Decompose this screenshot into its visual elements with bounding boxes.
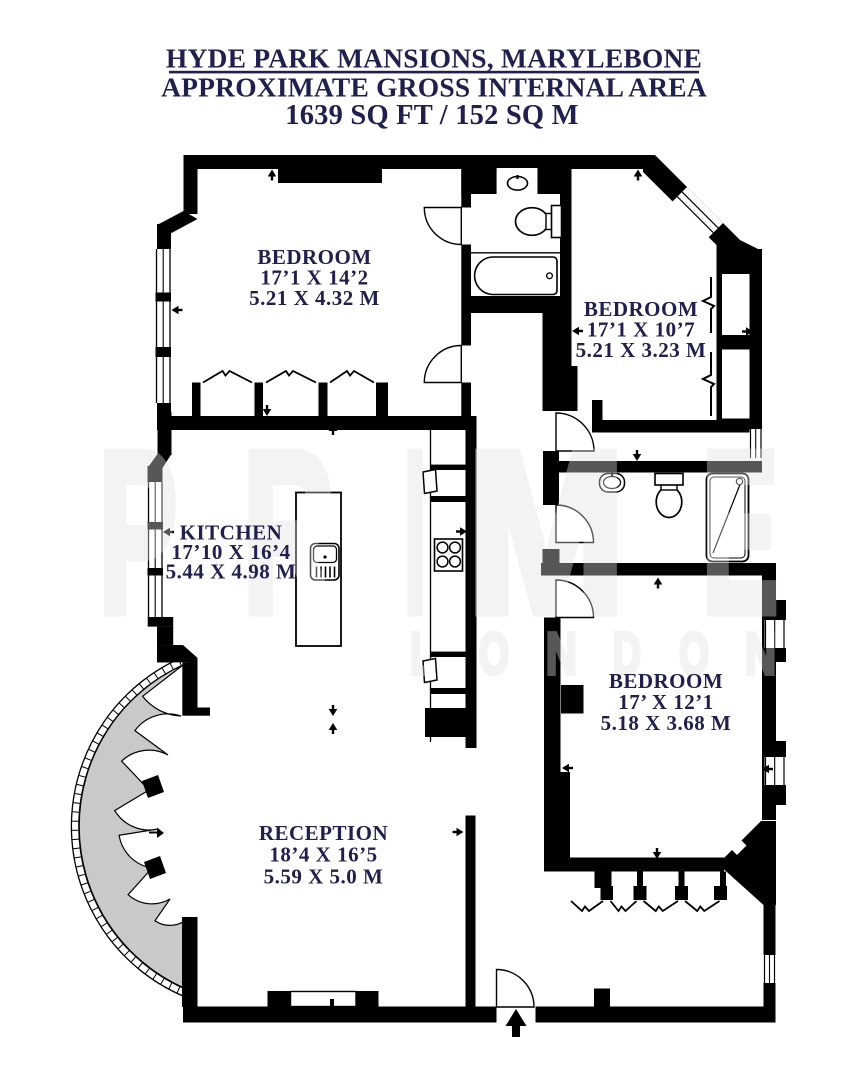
svg-text:L: L [410,621,435,687]
svg-text:5.18 X 3.68 M: 5.18 X 3.68 M [601,711,732,735]
svg-text:RECEPTION: RECEPTION [259,821,388,845]
svg-text:5.59 X 5.0 M: 5.59 X 5.0 M [264,864,384,888]
svg-text:5.44 X 4.98 M: 5.44 X 4.98 M [166,559,297,583]
svg-text:18’4 X 16’5: 18’4 X 16’5 [269,843,377,867]
svg-text:O: O [479,621,509,687]
svg-text:5.21 X 3.23 M: 5.21 X 3.23 M [576,338,707,362]
svg-text:N: N [745,621,776,687]
svg-text:HYDE PARK MANSIONS, MARYLEBONE: HYDE PARK MANSIONS, MARYLEBONE [166,43,702,74]
svg-text:N: N [546,621,577,687]
svg-text:P: P [99,406,177,660]
svg-text:5.21 X 4.32 M: 5.21 X 4.32 M [249,286,380,310]
svg-text:APPROXIMATE GROSS INTERNAL ARE: APPROXIMATE GROSS INTERNAL AREA [161,72,707,103]
svg-text:1639 SQ FT / 152 SQ M: 1639 SQ FT / 152 SQ M [285,100,578,131]
